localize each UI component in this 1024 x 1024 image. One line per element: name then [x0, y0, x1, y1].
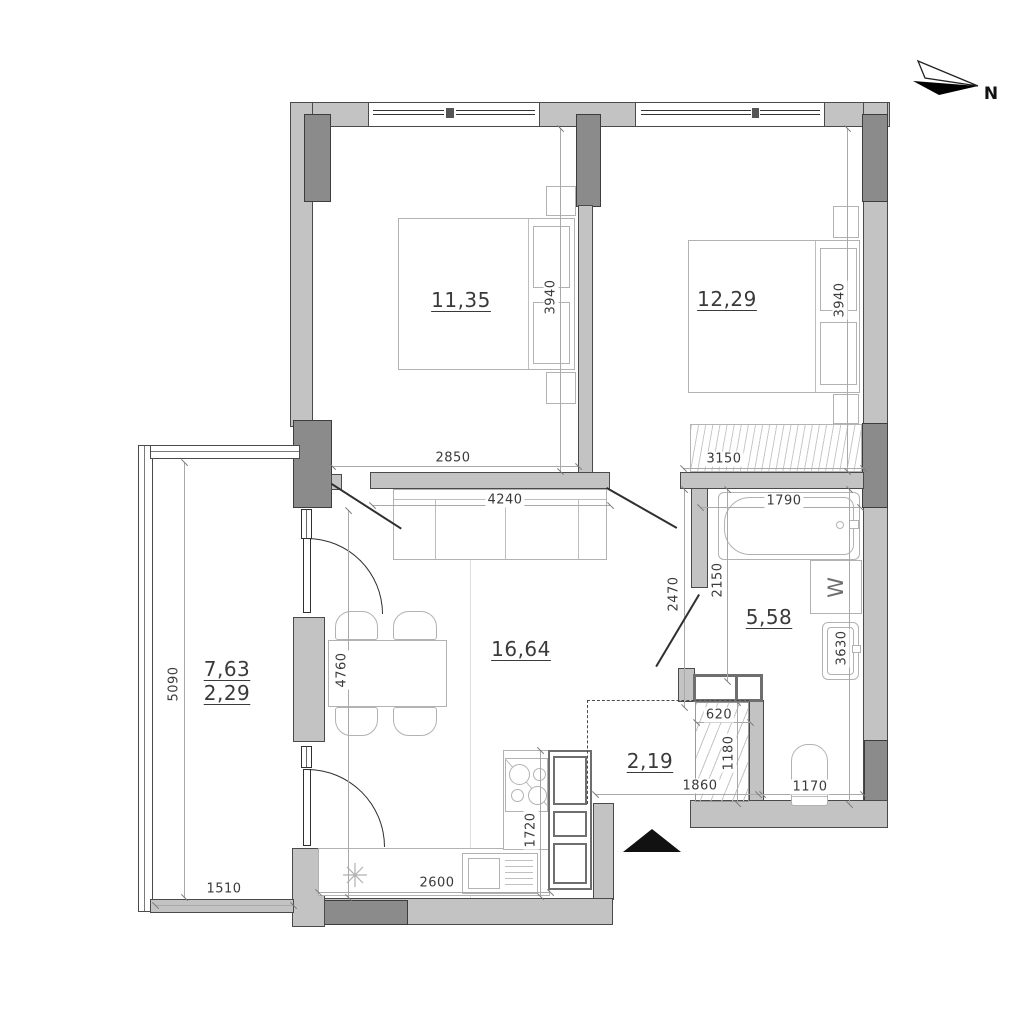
fridge-compartment	[553, 811, 587, 837]
floor-plan: W 2850 4240 3150 1790 3940 3940 2470 215…	[0, 0, 1024, 1024]
dim-2150: 2150	[711, 560, 726, 599]
pillow	[820, 322, 857, 385]
dim-1720: 1720	[524, 810, 539, 849]
wall-bottom-right	[690, 800, 888, 828]
burner	[528, 786, 547, 805]
dim-line-2850	[332, 466, 578, 467]
chair	[335, 611, 378, 640]
entrance-arrow	[623, 829, 681, 852]
burner	[509, 764, 530, 785]
bed-headboard-line	[815, 241, 816, 392]
kitchen-sink-drainer	[505, 860, 533, 888]
balcony-window-segment	[301, 746, 312, 768]
column-top-middle	[576, 114, 601, 207]
bathtub-faucet	[849, 520, 859, 529]
entry-hall-dashed-boundary	[587, 700, 588, 804]
wall-bathroom-top	[680, 472, 864, 489]
door-swing-arc-balcony-1	[307, 538, 383, 614]
room-area-living: 16,64	[491, 637, 551, 661]
balcony-window-segment	[301, 509, 312, 539]
pier-between-balcony-doors	[293, 617, 325, 742]
shaft-cabinet-divider	[735, 676, 738, 700]
room-area-bathroom: 5,58	[746, 605, 793, 629]
wall-kitchen-right	[593, 803, 614, 900]
dim-line-2150	[727, 489, 728, 682]
column-right-middle	[862, 423, 888, 508]
window-bedroom1-sash-left	[373, 110, 444, 115]
construction-line	[470, 508, 471, 898]
wall-bathroom-left	[691, 488, 708, 588]
sofa-cushion-line	[505, 500, 506, 559]
wall-shaft-right	[749, 700, 764, 802]
window-mullion	[752, 108, 759, 118]
bed-headboard-line	[528, 219, 529, 369]
dim-line-1860	[595, 794, 762, 795]
burner	[511, 789, 524, 802]
balcony-wall-bottom	[150, 899, 294, 913]
dim-1790: 1790	[764, 494, 803, 509]
entry-hall-dashed-boundary	[587, 700, 749, 701]
dim-1180: 1180	[722, 733, 737, 772]
balcony-glazing-top	[150, 445, 300, 459]
dim-line-3150	[683, 468, 863, 469]
window-bedroom2-sash-left	[641, 110, 751, 115]
dim-2850: 2850	[433, 451, 472, 466]
room-area-balcony-total: 7,63	[204, 657, 251, 681]
dim-4760: 4760	[335, 650, 350, 689]
window-mullion	[446, 108, 454, 118]
dim-1860: 1860	[680, 779, 719, 794]
dim-line-1720	[540, 750, 541, 897]
fridge-compartment	[553, 843, 587, 884]
window-bedroom1-sash-right	[456, 110, 535, 115]
sink-faucet	[852, 645, 861, 653]
washer-label: W	[824, 576, 848, 598]
chair	[393, 611, 437, 640]
column-top-left	[304, 114, 331, 202]
room-area-bedroom1: 11,35	[431, 288, 491, 312]
sofa-armrest-line	[578, 500, 579, 559]
dim-line-1510	[155, 905, 293, 906]
door-line-bedroom2	[606, 487, 677, 529]
dim-1510: 1510	[204, 882, 243, 897]
dim-3940-bedroom2: 3940	[833, 280, 848, 319]
room-area-hall: 2,19	[627, 749, 674, 773]
dim-620: 620	[704, 708, 734, 723]
kitchen-sink-basin	[468, 858, 500, 889]
nightstand	[546, 186, 576, 216]
fridge-compartment	[553, 756, 587, 805]
bathtub-drain	[836, 521, 844, 529]
toilet-line	[792, 796, 827, 797]
dim-5090: 5090	[167, 664, 182, 703]
column-top-right	[862, 114, 888, 202]
north-label: N	[984, 84, 998, 104]
nightstand	[833, 206, 859, 238]
wall-bedroom-divider	[578, 205, 593, 474]
dim-line-5090	[184, 462, 185, 898]
room-area-bedroom2: 12,29	[697, 287, 757, 311]
dim-3150: 3150	[704, 452, 743, 467]
balcony-glazing-left	[138, 445, 153, 912]
dim-2600: 2600	[417, 876, 456, 891]
dim-1170: 1170	[790, 780, 829, 795]
door-swing-arc-balcony-2	[307, 769, 385, 847]
nightstand	[546, 372, 576, 404]
shaft-cabinet	[693, 674, 763, 702]
dim-line-4760	[348, 510, 349, 898]
dim-2470: 2470	[667, 574, 682, 613]
dim-3940-bedroom1: 3940	[544, 277, 559, 316]
room-area-balcony-counted: 2,29	[204, 681, 251, 705]
window-bedroom2-sash-right	[760, 110, 820, 115]
sofa-armrest-line	[435, 500, 436, 559]
chair	[335, 707, 378, 736]
dim-line-1180	[737, 702, 738, 804]
door-line-bedroom1	[331, 483, 402, 529]
dim-line-3940-bedroom1	[560, 128, 561, 472]
dim-3630: 3630	[835, 628, 850, 667]
drain-symbol	[342, 862, 368, 888]
column-left-middle	[293, 420, 332, 508]
dim-line-2470	[684, 489, 685, 708]
dim-line-2600	[318, 892, 550, 893]
nightstand	[833, 394, 859, 424]
wall-bedroom1-living	[370, 472, 610, 489]
dim-4240: 4240	[485, 493, 524, 508]
chair	[393, 707, 437, 736]
